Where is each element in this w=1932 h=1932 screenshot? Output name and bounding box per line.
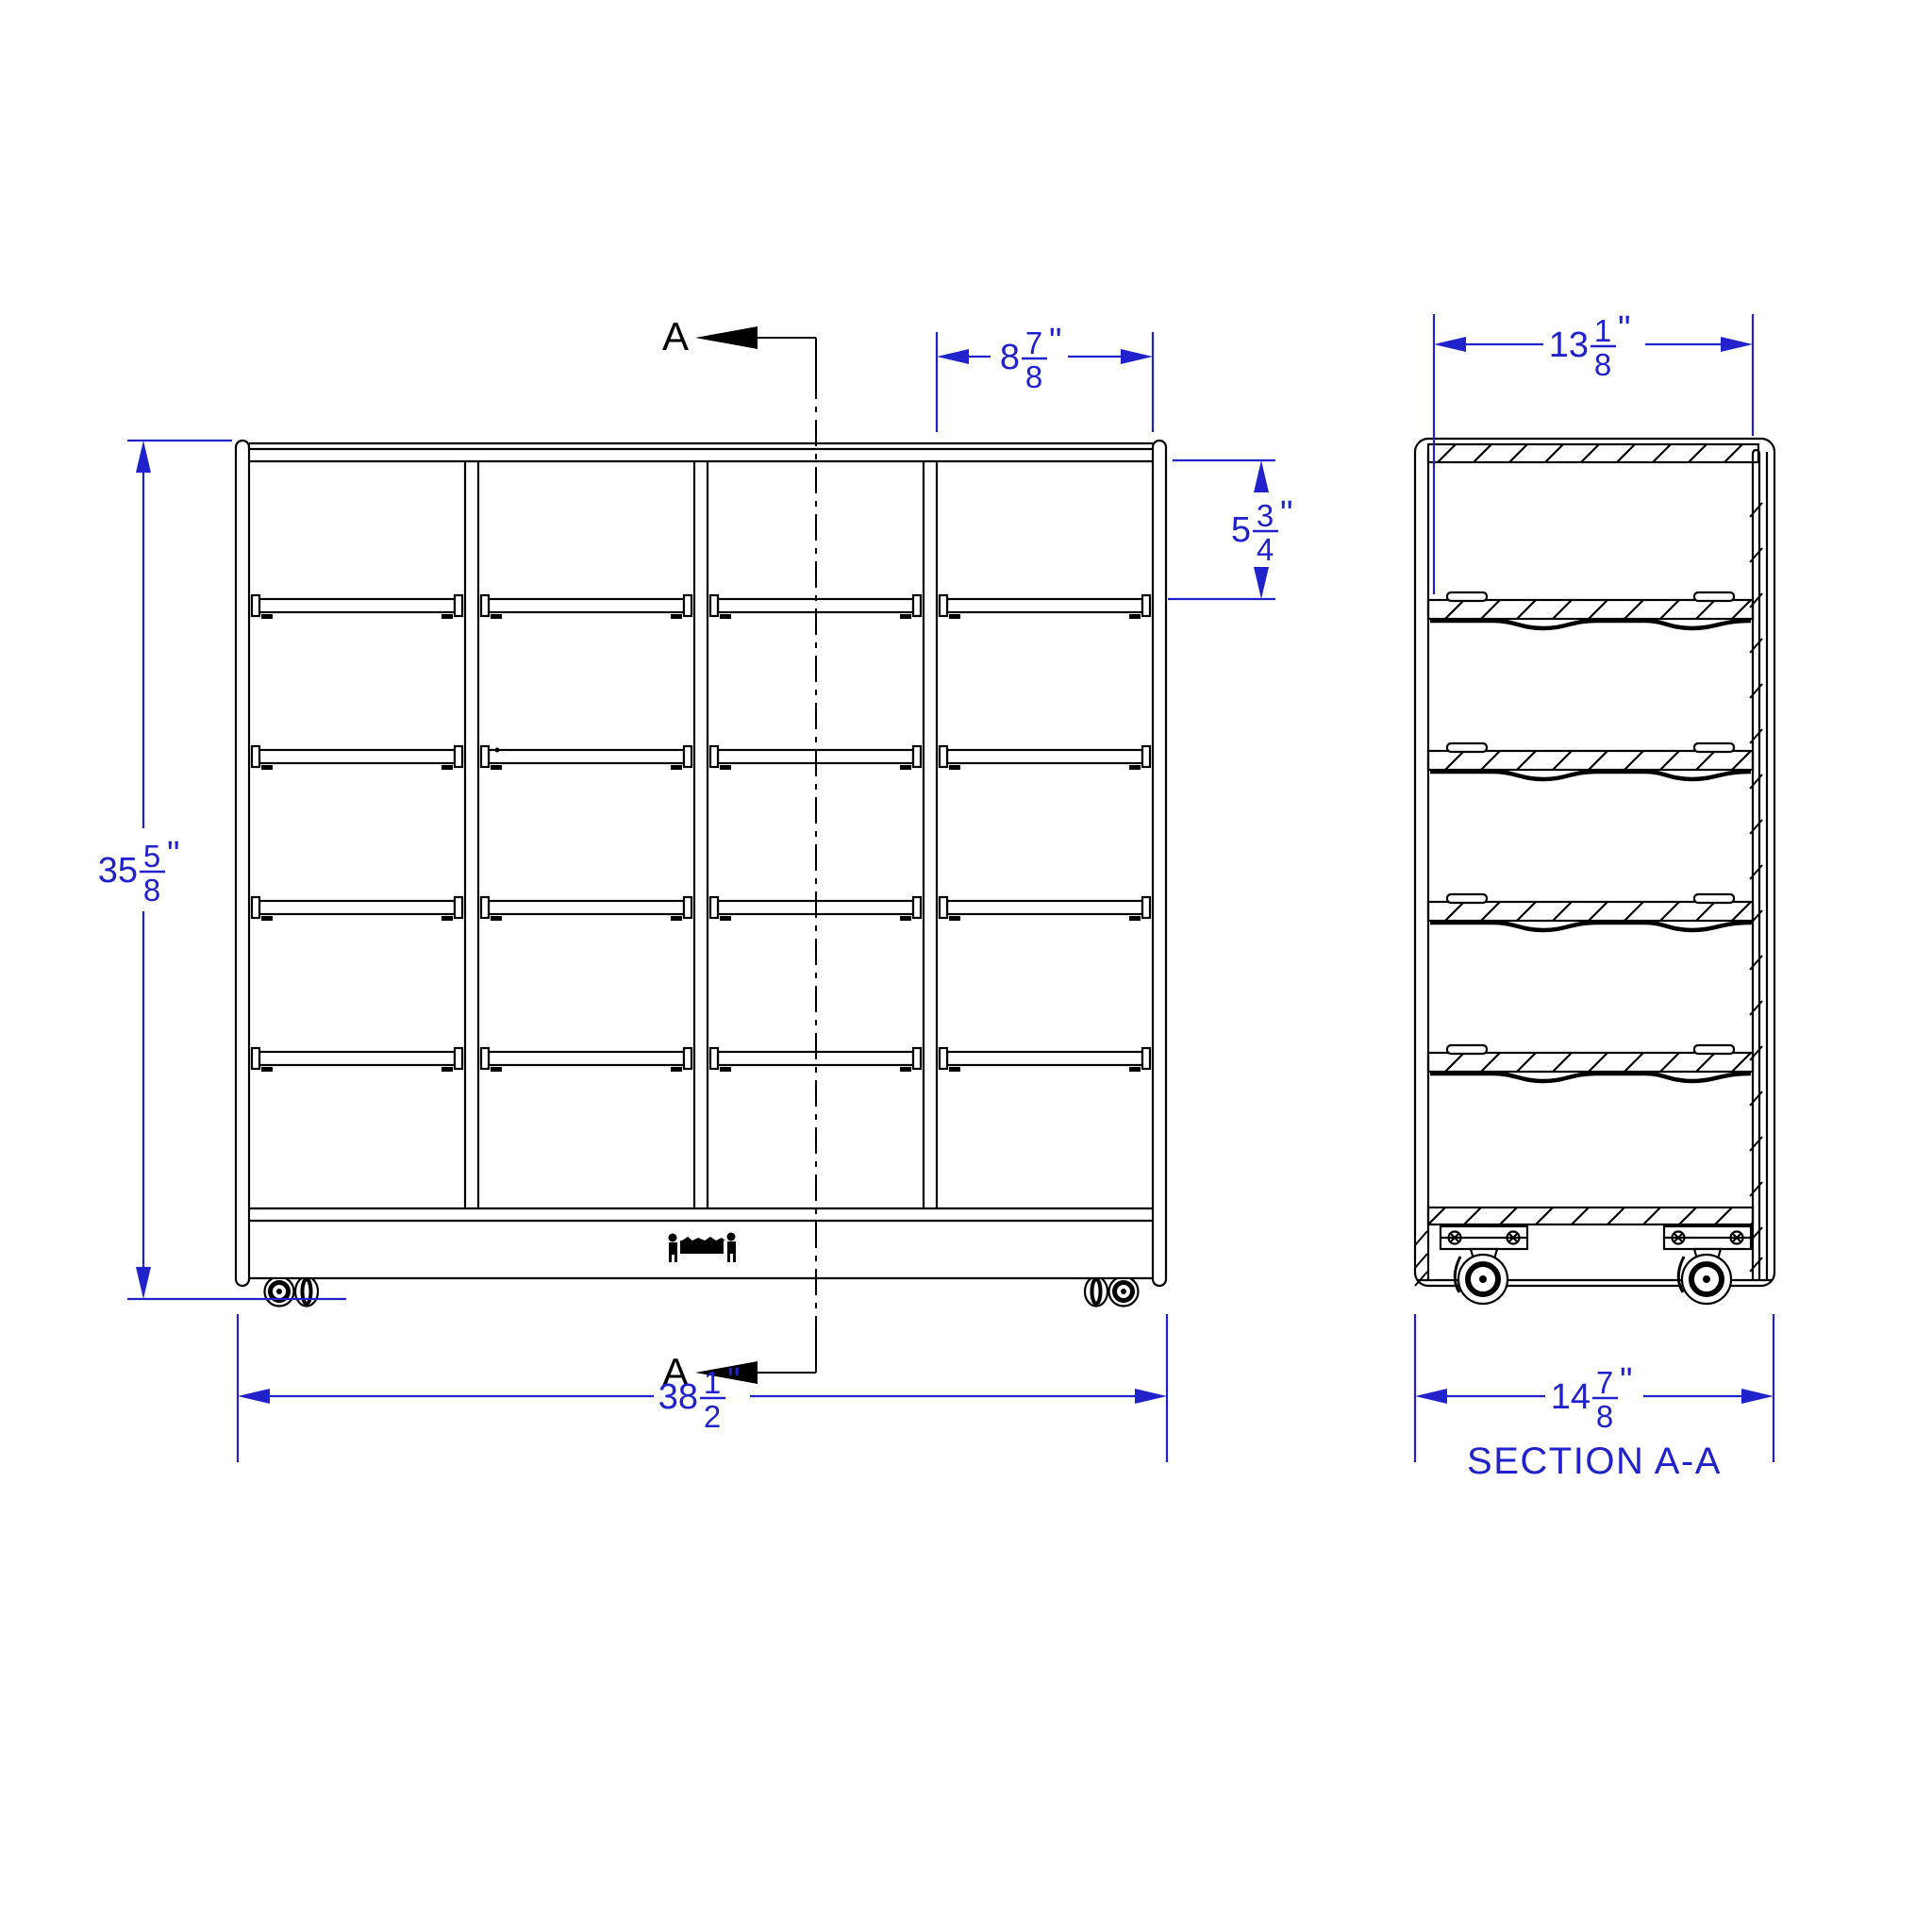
svg-text:": " bbox=[167, 835, 180, 874]
section-caster-left bbox=[1441, 1226, 1527, 1304]
caster-wheel-icon bbox=[1085, 1277, 1139, 1307]
svg-text:14: 14 bbox=[1551, 1377, 1591, 1417]
dim-cubby-width-text: 8 7 8 " bbox=[1000, 322, 1062, 394]
svg-text:38: 38 bbox=[658, 1377, 698, 1417]
dim-front-height: 35 5 8 " bbox=[98, 441, 346, 1299]
brand-logo bbox=[669, 1233, 737, 1263]
section-caster-right bbox=[1664, 1226, 1751, 1304]
dim-front-height-text: 35 5 8 " bbox=[98, 835, 180, 908]
dim-cubby-height: 5 3 4 " bbox=[1168, 460, 1293, 599]
svg-text:5: 5 bbox=[1231, 510, 1251, 550]
cubby-shelf-rails bbox=[252, 595, 1150, 1072]
svg-text:35: 35 bbox=[98, 851, 138, 891]
svg-text:": " bbox=[1620, 1361, 1633, 1401]
technical-drawing: A A bbox=[0, 0, 1932, 1932]
svg-text:2: 2 bbox=[704, 1399, 721, 1434]
svg-text:7: 7 bbox=[1596, 1365, 1613, 1400]
section-marker-top: A bbox=[662, 314, 689, 358]
svg-text:4: 4 bbox=[1257, 532, 1274, 567]
drawing-canvas: A A bbox=[0, 0, 1932, 1932]
section-shelves bbox=[1428, 592, 1753, 1081]
svg-text:": " bbox=[1280, 494, 1293, 534]
section-bottom-panel bbox=[1428, 1207, 1753, 1224]
svg-text:8: 8 bbox=[1594, 347, 1611, 382]
svg-text:13: 13 bbox=[1549, 325, 1589, 365]
svg-text:3: 3 bbox=[1257, 498, 1274, 533]
section-outline bbox=[1415, 439, 1774, 1286]
section-top-panel bbox=[1428, 444, 1758, 462]
front-right-post bbox=[1153, 441, 1166, 1286]
dim-cubby-height-text: 5 3 4 " bbox=[1231, 494, 1293, 567]
cubby-dividers bbox=[465, 461, 937, 1208]
svg-text:1: 1 bbox=[1594, 313, 1611, 348]
svg-text:8: 8 bbox=[1596, 1399, 1613, 1434]
svg-text:": " bbox=[1049, 322, 1062, 361]
dim-cubby-width: 8 7 8 " bbox=[937, 322, 1153, 432]
svg-text:": " bbox=[727, 1361, 741, 1401]
dim-section-inner-width-text: 13 1 8 " bbox=[1549, 309, 1631, 382]
section-view bbox=[1415, 439, 1774, 1304]
front-view bbox=[236, 441, 1166, 1307]
svg-text:5: 5 bbox=[143, 839, 160, 874]
svg-text:": " bbox=[1618, 309, 1631, 349]
svg-text:1: 1 bbox=[704, 1365, 721, 1400]
section-back-panel bbox=[1750, 450, 1762, 1280]
section-arrow-top-icon bbox=[695, 326, 758, 349]
drawing-speck bbox=[495, 748, 500, 753]
svg-text:8: 8 bbox=[143, 873, 160, 908]
svg-text:8: 8 bbox=[1000, 338, 1020, 377]
front-top-band bbox=[249, 443, 1153, 461]
front-casters bbox=[265, 1277, 1139, 1307]
dim-front-width: 38 1 2 " bbox=[238, 1314, 1167, 1462]
front-left-post bbox=[236, 441, 249, 1286]
section-cut-line: A A bbox=[662, 314, 816, 1394]
caster-wheel-icon bbox=[265, 1277, 319, 1307]
section-title: SECTION A-A bbox=[1467, 1441, 1722, 1482]
svg-text:8: 8 bbox=[1025, 359, 1042, 394]
svg-text:7: 7 bbox=[1025, 325, 1042, 360]
dim-section-depth-text: 14 7 8 " bbox=[1551, 1361, 1633, 1434]
